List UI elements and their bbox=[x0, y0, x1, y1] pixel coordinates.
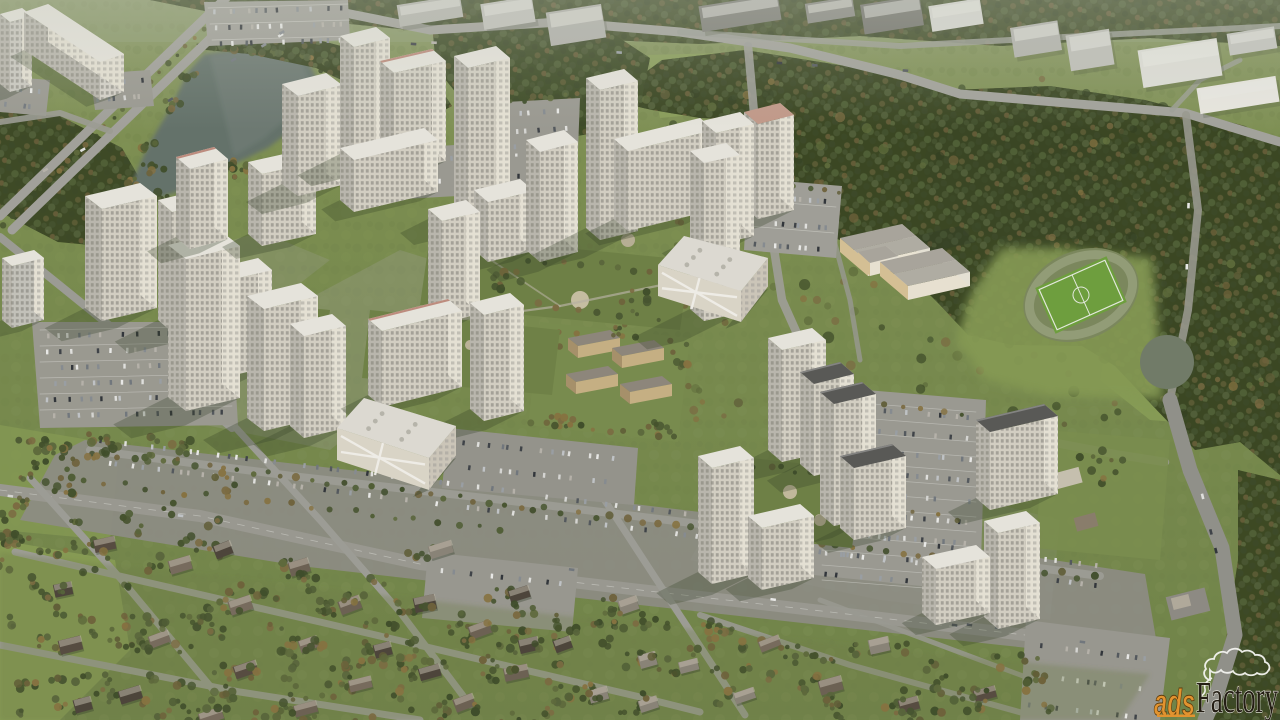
svg-text:ads: ads bbox=[1154, 682, 1195, 720]
svg-text:Factory: Factory bbox=[1196, 673, 1278, 720]
